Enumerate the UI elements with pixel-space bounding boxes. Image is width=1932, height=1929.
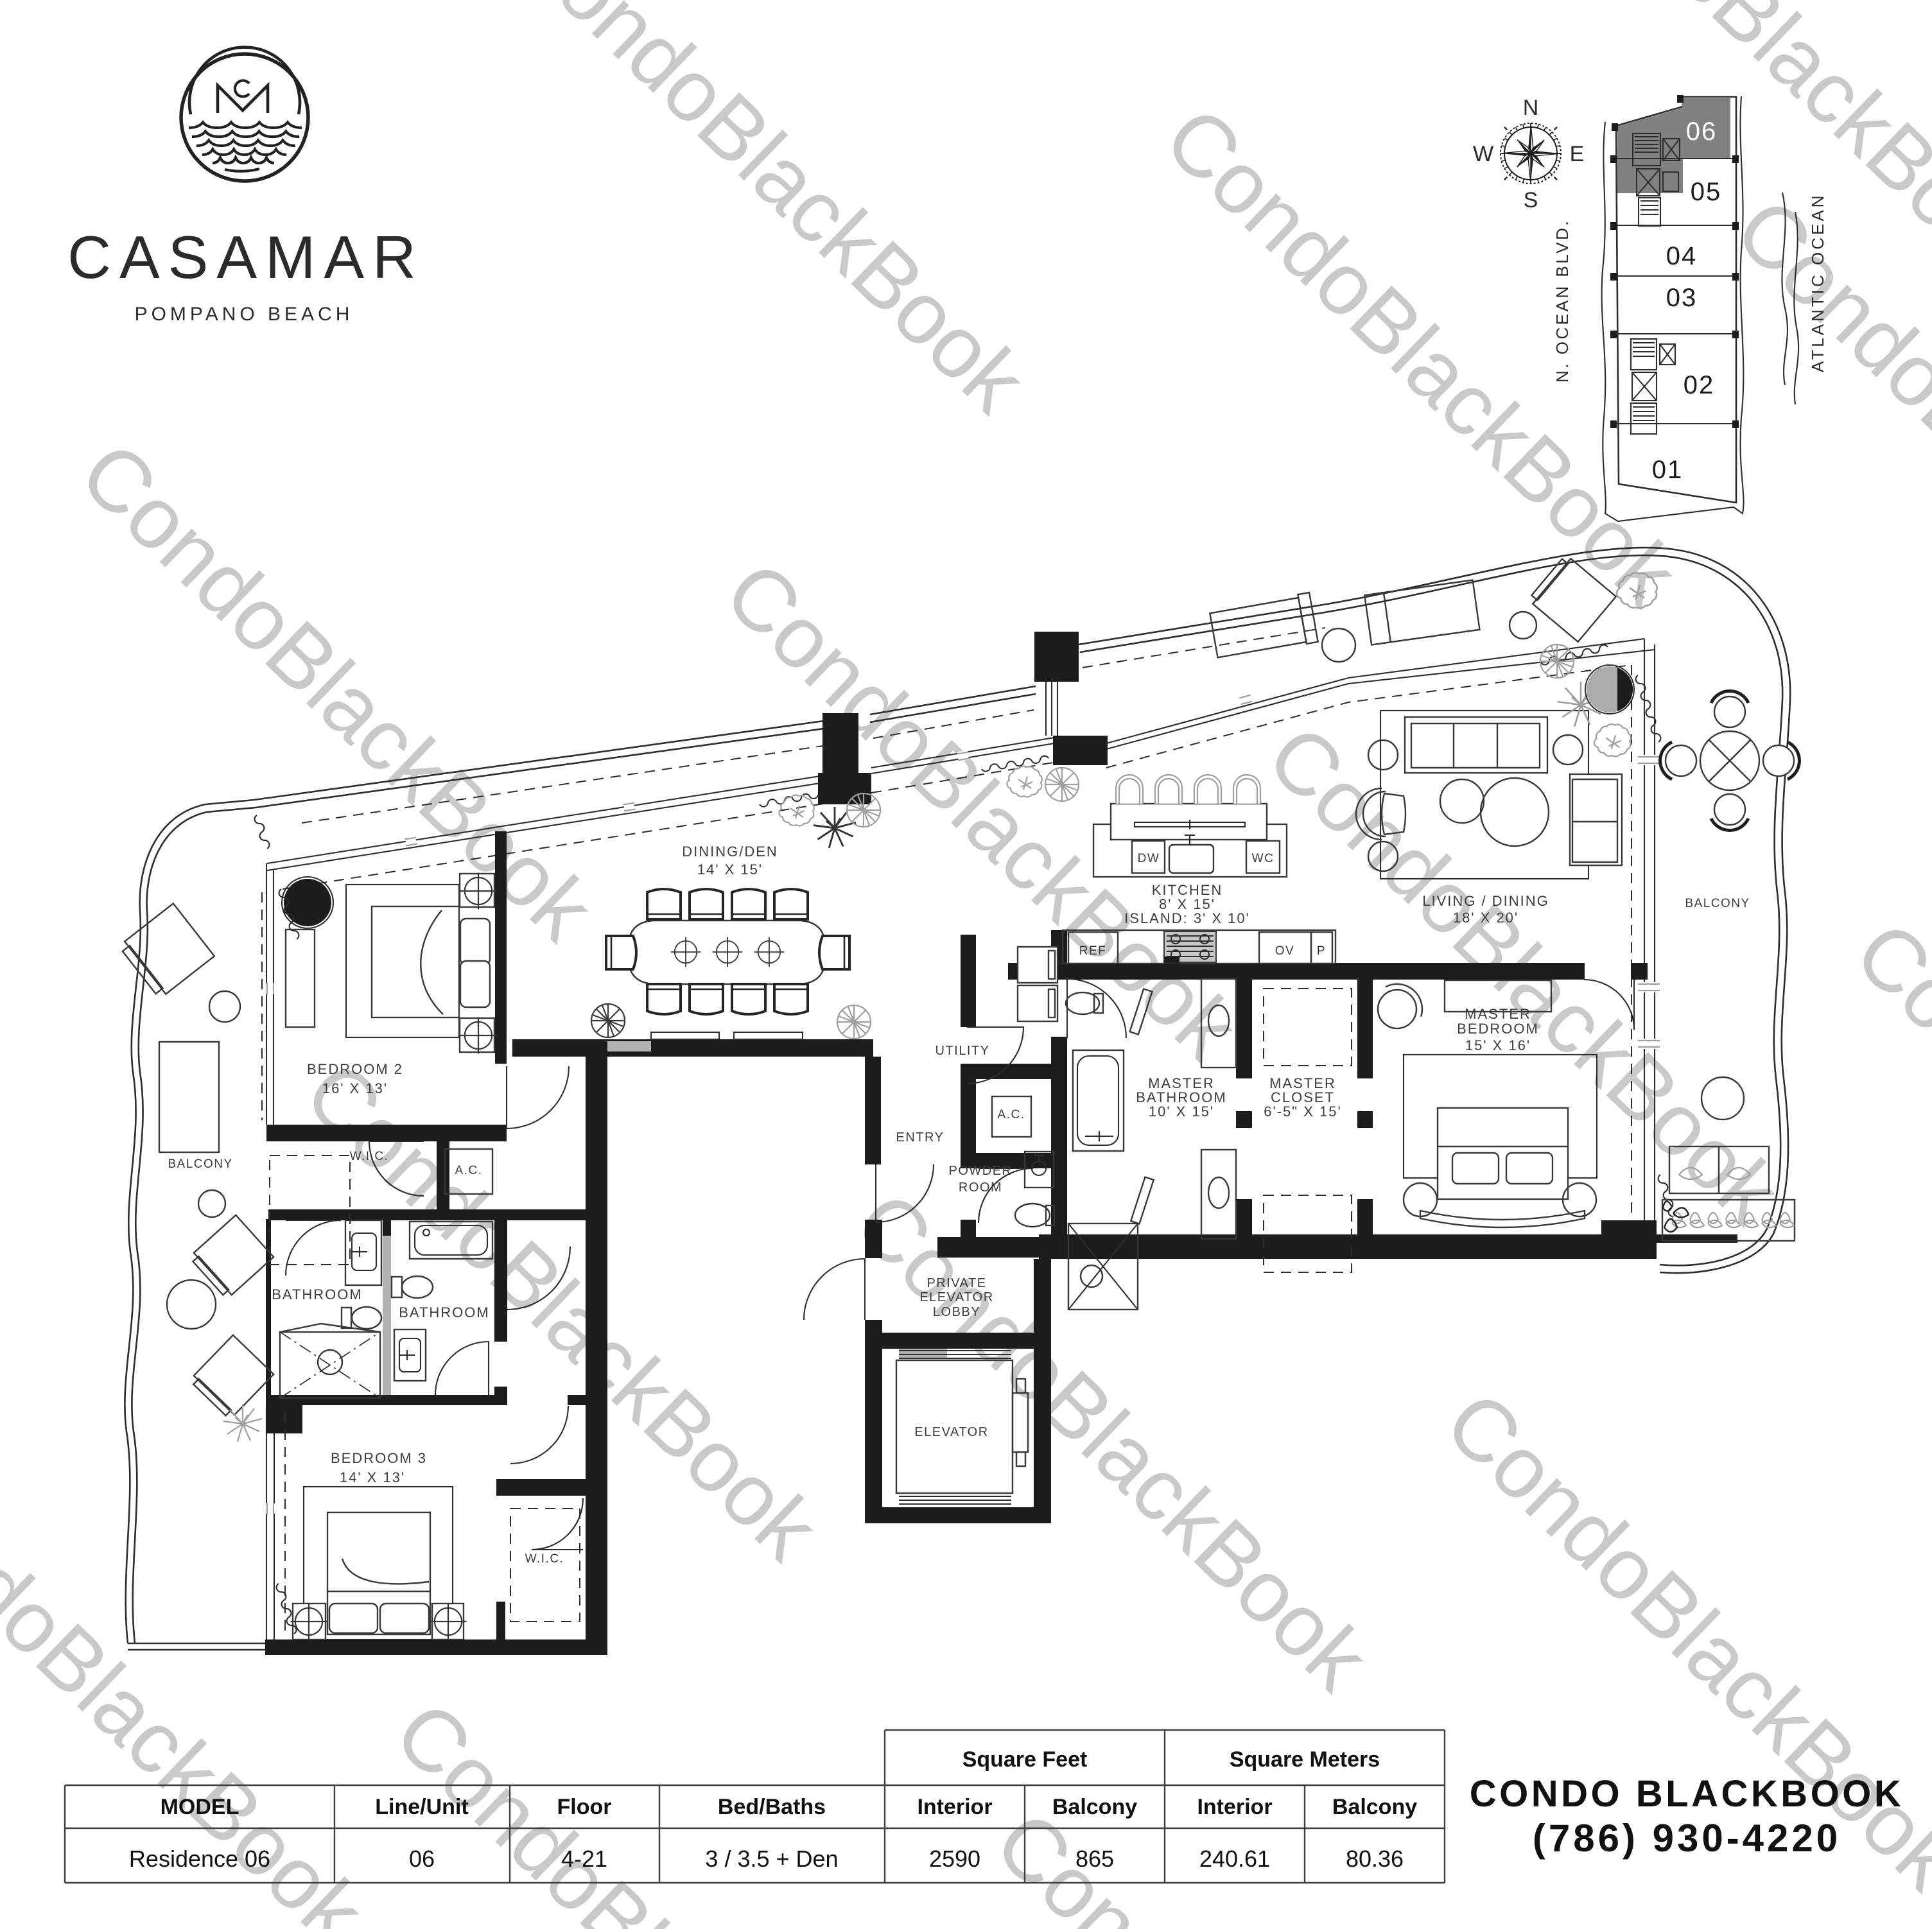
svg-text:MODEL: MODEL: [161, 1795, 239, 1819]
svg-text:03: 03: [1666, 284, 1698, 312]
svg-text:P: P: [1317, 944, 1326, 958]
svg-text:Line/Unit: Line/Unit: [375, 1795, 468, 1819]
svg-text:Interior: Interior: [917, 1795, 992, 1819]
svg-text:Balcony: Balcony: [1332, 1795, 1417, 1819]
svg-text:2590: 2590: [929, 1846, 980, 1872]
svg-text:WC: WC: [1252, 852, 1275, 865]
svg-text:BALCONY: BALCONY: [168, 1157, 232, 1171]
svg-text:W.I.C.: W.I.C.: [525, 1552, 564, 1566]
svg-text:ATLANTIC OCEAN: ATLANTIC OCEAN: [1808, 193, 1827, 372]
svg-text:A.C.: A.C.: [998, 1108, 1025, 1121]
svg-text:POMPANO BEACH: POMPANO BEACH: [135, 304, 354, 325]
svg-text:865: 865: [1075, 1846, 1114, 1872]
svg-text:CASAMAR: CASAMAR: [67, 223, 424, 291]
svg-text:18' X 20': 18' X 20': [1453, 910, 1519, 926]
svg-text:BEDROOM: BEDROOM: [1457, 1021, 1539, 1037]
svg-text:04: 04: [1666, 242, 1698, 270]
svg-text:02: 02: [1684, 371, 1715, 399]
svg-text:Square Meters: Square Meters: [1230, 1747, 1380, 1772]
svg-text:REF: REF: [1079, 944, 1107, 958]
svg-text:ELEVATOR: ELEVATOR: [914, 1425, 988, 1439]
svg-text:80.36: 80.36: [1346, 1846, 1404, 1872]
svg-text:3 / 3.5 + Den: 3 / 3.5 + Den: [705, 1846, 838, 1872]
svg-text:LIVING / DINING: LIVING / DINING: [1422, 893, 1549, 909]
svg-text:06: 06: [1686, 117, 1718, 146]
svg-text:LOBBY: LOBBY: [933, 1305, 980, 1319]
svg-text:CONDO BLACKBOOK: CONDO BLACKBOOK: [1470, 1773, 1904, 1815]
svg-text:N. OCEAN BLVD.: N. OCEAN BLVD.: [1553, 219, 1572, 383]
svg-text:ISLAND: 3' X 10': ISLAND: 3' X 10': [1124, 910, 1250, 926]
svg-text:240.61: 240.61: [1199, 1846, 1270, 1872]
svg-text:Balcony: Balcony: [1052, 1795, 1137, 1819]
svg-text:W: W: [1473, 142, 1493, 166]
svg-text:Interior: Interior: [1197, 1795, 1272, 1819]
svg-text:06: 06: [409, 1846, 435, 1872]
svg-text:6'-5" X 15': 6'-5" X 15': [1264, 1103, 1341, 1120]
svg-text:OV: OV: [1275, 944, 1294, 958]
svg-text:BEDROOM 2: BEDROOM 2: [307, 1061, 403, 1077]
svg-text:(786) 930-4220: (786) 930-4220: [1533, 1817, 1841, 1860]
svg-text:BALCONY: BALCONY: [1685, 897, 1750, 910]
svg-text:BEDROOM 3: BEDROOM 3: [331, 1450, 427, 1466]
svg-text:Square Feet: Square Feet: [962, 1747, 1088, 1772]
svg-text:10' X 15': 10' X 15': [1149, 1103, 1214, 1120]
svg-text:01: 01: [1652, 456, 1684, 484]
svg-text:W.I.C.: W.I.C.: [350, 1150, 389, 1163]
svg-text:UTILITY: UTILITY: [936, 1044, 990, 1058]
svg-text:DW: DW: [1138, 852, 1160, 865]
svg-text:BATHROOM: BATHROOM: [399, 1304, 489, 1320]
svg-text:05: 05: [1691, 178, 1722, 206]
svg-text:14' X 15': 14' X 15': [697, 861, 763, 878]
svg-text:Floor: Floor: [557, 1795, 612, 1819]
svg-text:ENTRY: ENTRY: [896, 1130, 944, 1145]
svg-text:Residence 06: Residence 06: [129, 1846, 270, 1872]
svg-text:15' X 16': 15' X 16': [1465, 1037, 1531, 1053]
svg-text:16' X 13': 16' X 13': [322, 1080, 388, 1096]
svg-text:A.C.: A.C.: [455, 1164, 483, 1177]
svg-text:PRIVATE: PRIVATE: [927, 1276, 986, 1290]
svg-text:ELEVATOR: ELEVATOR: [919, 1290, 993, 1304]
svg-text:BATHROOM: BATHROOM: [272, 1286, 362, 1302]
svg-text:14' X 13': 14' X 13': [340, 1469, 405, 1485]
svg-text:POWDER: POWDER: [949, 1164, 1013, 1178]
svg-text:N: N: [1523, 96, 1539, 120]
svg-text:4-21: 4-21: [561, 1846, 607, 1872]
svg-text:Bed/Baths: Bed/Baths: [718, 1795, 826, 1819]
svg-text:ROOM: ROOM: [959, 1181, 1002, 1195]
svg-text:E: E: [1570, 142, 1585, 166]
svg-text:MASTER: MASTER: [1465, 1006, 1531, 1022]
svg-text:S: S: [1524, 188, 1538, 212]
svg-text:DINING/DEN: DINING/DEN: [682, 843, 778, 860]
